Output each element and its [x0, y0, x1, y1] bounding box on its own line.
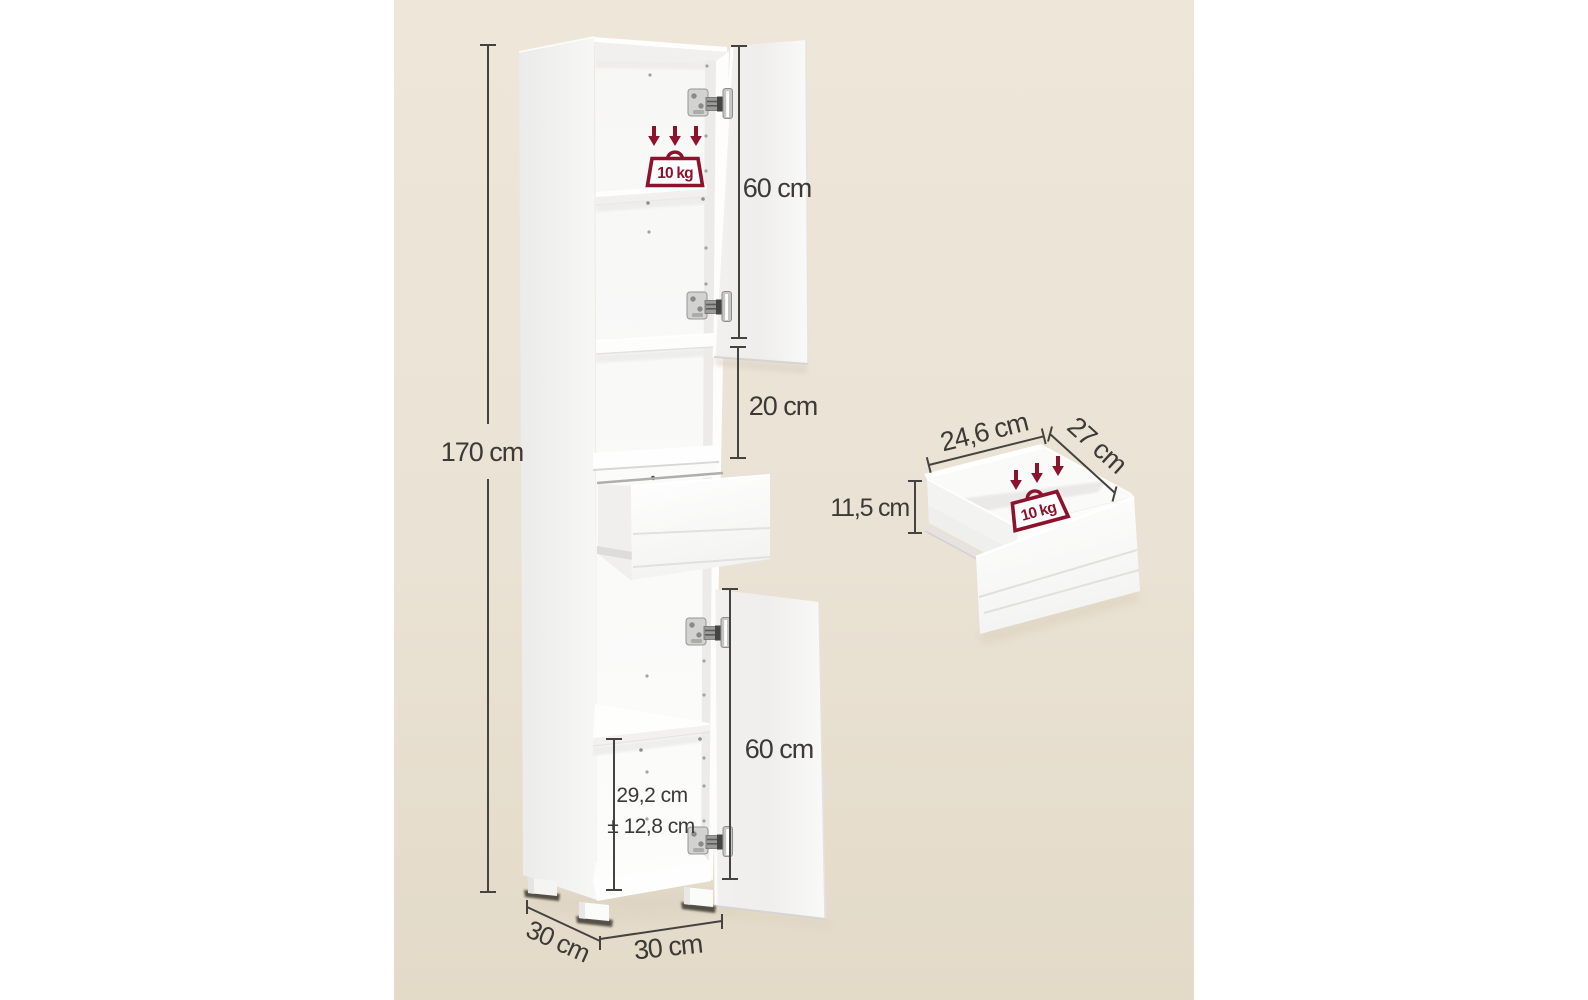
svg-text:60 cm: 60 cm	[743, 173, 812, 203]
svg-text:170 cm: 170 cm	[441, 437, 524, 467]
svg-text:± 12,8 cm: ± 12,8 cm	[607, 815, 695, 838]
svg-text:60 cm: 60 cm	[745, 734, 814, 764]
svg-text:11,5 cm: 11,5 cm	[830, 494, 909, 522]
svg-text:29,2 cm: 29,2 cm	[616, 784, 687, 807]
svg-text:20 cm: 20 cm	[749, 391, 818, 421]
